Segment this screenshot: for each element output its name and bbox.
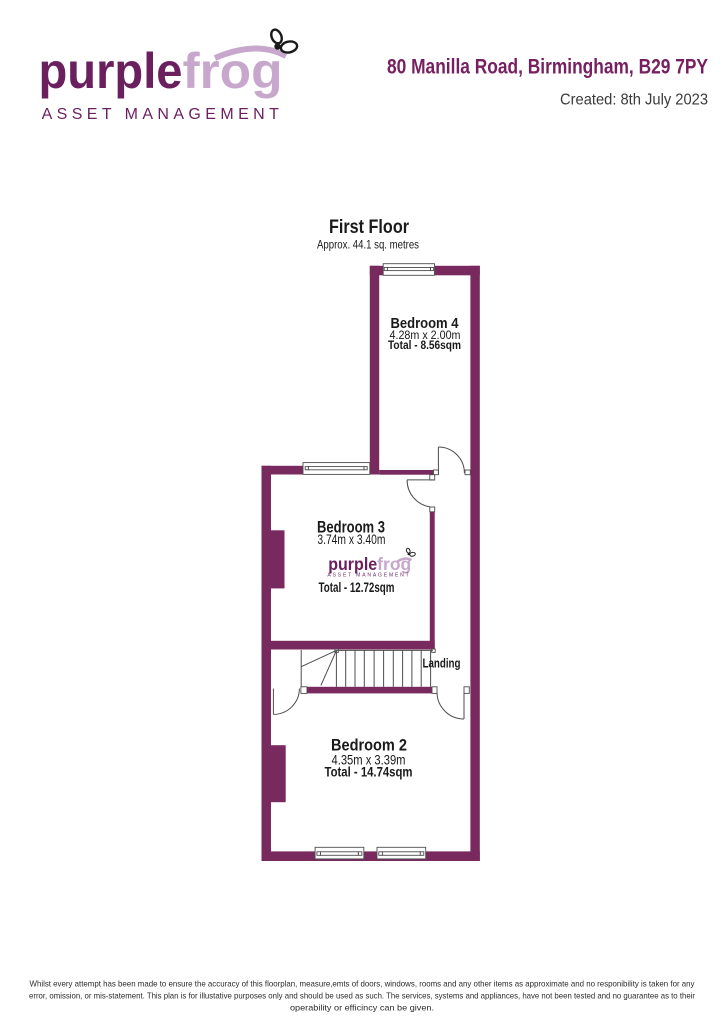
svg-text:Total - 12.72sqm: Total - 12.72sqm <box>319 580 395 595</box>
svg-text:Created: 8th July 2023: Created: 8th July 2023 <box>560 92 708 109</box>
svg-text:error, omission, or mis-statem: error, omission, or mis-statement. This … <box>29 992 695 1001</box>
svg-text:frog: frog <box>377 554 411 574</box>
svg-text:purple: purple <box>328 554 377 574</box>
svg-text:Whilst every attempt has been: Whilst every attempt has been made to en… <box>30 980 696 989</box>
svg-text:operability or efficincy can b: operability or efficincy can be given. <box>290 1004 434 1013</box>
svg-text:Total - 14.74sqm: Total - 14.74sqm <box>325 764 413 779</box>
svg-text:ASSET MANAGEMENT: ASSET MANAGEMENT <box>42 106 284 123</box>
svg-text:Total - 8.56sqm: Total - 8.56sqm <box>388 338 461 352</box>
svg-text:3.74m x 3.40m: 3.74m x 3.40m <box>317 532 385 547</box>
svg-text:purple: purple <box>39 43 183 99</box>
svg-text:80 Manilla Road, Birmingham, B: 80 Manilla Road, Birmingham, B29 7PY <box>387 56 708 79</box>
svg-text:Approx. 44.1 sq. metres: Approx. 44.1 sq. metres <box>317 237 419 251</box>
svg-text:First Floor: First Floor <box>329 216 409 238</box>
svg-text:ASSET MANAGEMENT: ASSET MANAGEMENT <box>327 573 410 579</box>
svg-text:Landing: Landing <box>423 657 461 671</box>
